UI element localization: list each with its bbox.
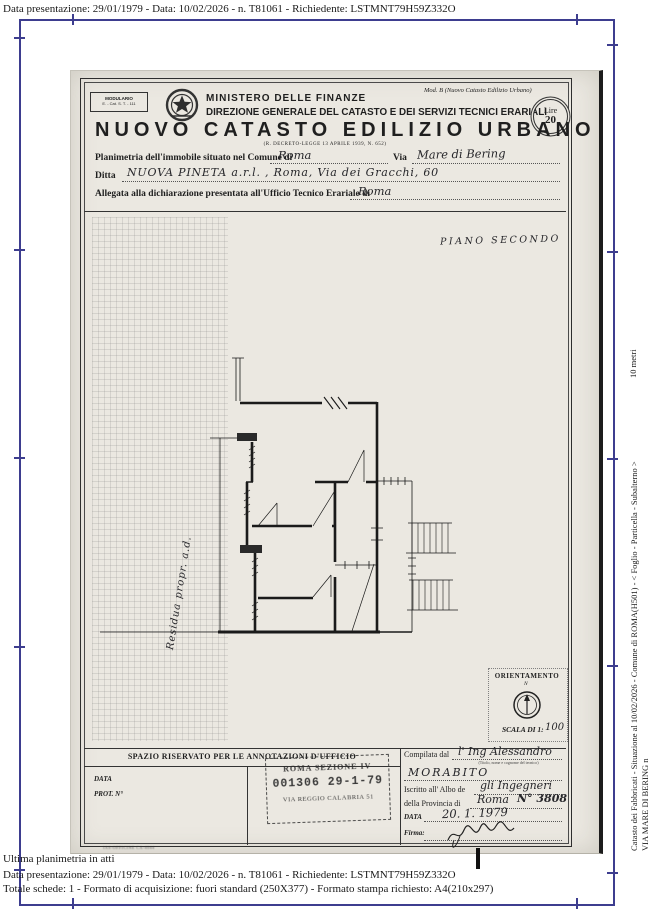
stamp-line3: VIA REGGIO CALABRIA 51 xyxy=(267,793,389,804)
divider xyxy=(400,748,401,845)
viewer-bottom-line2: Data presentazione: 29/01/1979 - Data: 1… xyxy=(3,869,456,881)
stamp-line1: ROMA SEZIONE IV xyxy=(266,761,388,774)
ultima-planimetria-note: Ultima planimetria in atti xyxy=(3,853,115,865)
albo-label: Iscritto all' Albo de xyxy=(404,785,465,794)
field-rule xyxy=(424,840,562,841)
field-via-value: Mare di Bering xyxy=(417,146,506,162)
scale-label: SCALA DI 1: xyxy=(502,725,544,734)
field-ufficio-label: Allegata alla dichiarazione presentata a… xyxy=(95,189,370,199)
albo-value: gli Ingegneri xyxy=(480,779,552,792)
ruler-tick xyxy=(607,251,618,253)
field-ditta-label: Ditta xyxy=(95,171,116,181)
direzione-title: DIREZIONE GENERALE DEL CATASTO E DEI SER… xyxy=(206,107,547,118)
divider xyxy=(247,766,248,845)
ruler-tick xyxy=(607,872,618,874)
modulario-box: MODULARIO E. - Cat. S. T. - 111 xyxy=(90,92,148,112)
ruler-tick xyxy=(14,37,25,39)
scale-length-label: 10 metri xyxy=(628,349,638,378)
annotations-data-label: DATA xyxy=(94,775,112,783)
mod-b-note: Mod. B (Nuovo Catasto Edilizio Urbano) xyxy=(424,87,532,94)
ruler-tick xyxy=(576,14,578,25)
ruler-tick xyxy=(72,14,74,25)
compiler-date-label: DATA xyxy=(404,813,422,821)
ruler-tick xyxy=(14,457,25,459)
albo-number: N° 3808 xyxy=(517,792,567,805)
signature xyxy=(430,806,540,852)
field-via-label: Via xyxy=(393,153,407,163)
field-rule xyxy=(270,163,388,164)
compiler-note: (Titolo, nome e cognome del tecnico) xyxy=(455,760,562,765)
ruler-tick xyxy=(14,249,25,251)
north-label: N xyxy=(524,681,528,687)
ruler-tick xyxy=(607,665,618,667)
field-ditta-value: NUOVA PINETA a.r.l. , Roma, Via dei Grac… xyxy=(127,166,439,179)
field-rule xyxy=(412,163,560,164)
floor-plan-drawing xyxy=(84,211,566,747)
catasto-info-line: Catasto dei Fabbricati - Situazione al 1… xyxy=(629,461,639,851)
planimetria-viewer: Data presentazione: 29/01/1979 - Data: 1… xyxy=(0,0,650,911)
firma-label: Firma: xyxy=(404,829,425,837)
modulario-line2: E. - Cat. S. T. - 111 xyxy=(102,102,135,106)
stamp-line2: 001306 29-1-79 xyxy=(267,774,389,791)
office-stamp: ROMA SEZIONE IV 001306 29-1-79 VIA REGGI… xyxy=(265,754,391,824)
field-rule xyxy=(122,181,560,182)
annotations-prot-label: PROT. N° xyxy=(94,790,123,798)
ruler-tick xyxy=(14,646,25,648)
viewer-top-line: Data presentazione: 29/01/1979 - Data: 1… xyxy=(3,3,456,15)
field-comune-value: Roma xyxy=(278,148,311,162)
compass-icon xyxy=(512,689,542,721)
ruler-tick xyxy=(72,898,74,909)
address-line: VIA MARE DI BERING n xyxy=(640,758,650,851)
orientation-title: ORIENTAMENTO xyxy=(490,672,564,680)
ruler-tick xyxy=(576,898,578,909)
field-ufficio-value: Roma xyxy=(358,184,391,198)
field-comune-label: Planimetria dell'immobile situato nel Co… xyxy=(95,153,292,163)
ruler-tick xyxy=(607,44,618,46)
viewer-bottom-line3: Totale schede: 1 - Formato di acquisizio… xyxy=(3,883,493,895)
field-rule xyxy=(350,199,560,200)
compiler-label: Compilata dal xyxy=(404,750,449,759)
document-title: NUOVO CATASTO EDILIZIO URBANO xyxy=(95,119,555,142)
scale-value: 100 xyxy=(545,722,564,733)
ministero-title: MINISTERO DELLE FINANZE xyxy=(206,93,366,104)
compiler-name: l' Ing Alessandro xyxy=(458,745,552,758)
scan-edge-mark xyxy=(476,848,480,869)
compiler-surname: MORABITO xyxy=(408,766,489,779)
ruler-tick xyxy=(607,458,618,460)
